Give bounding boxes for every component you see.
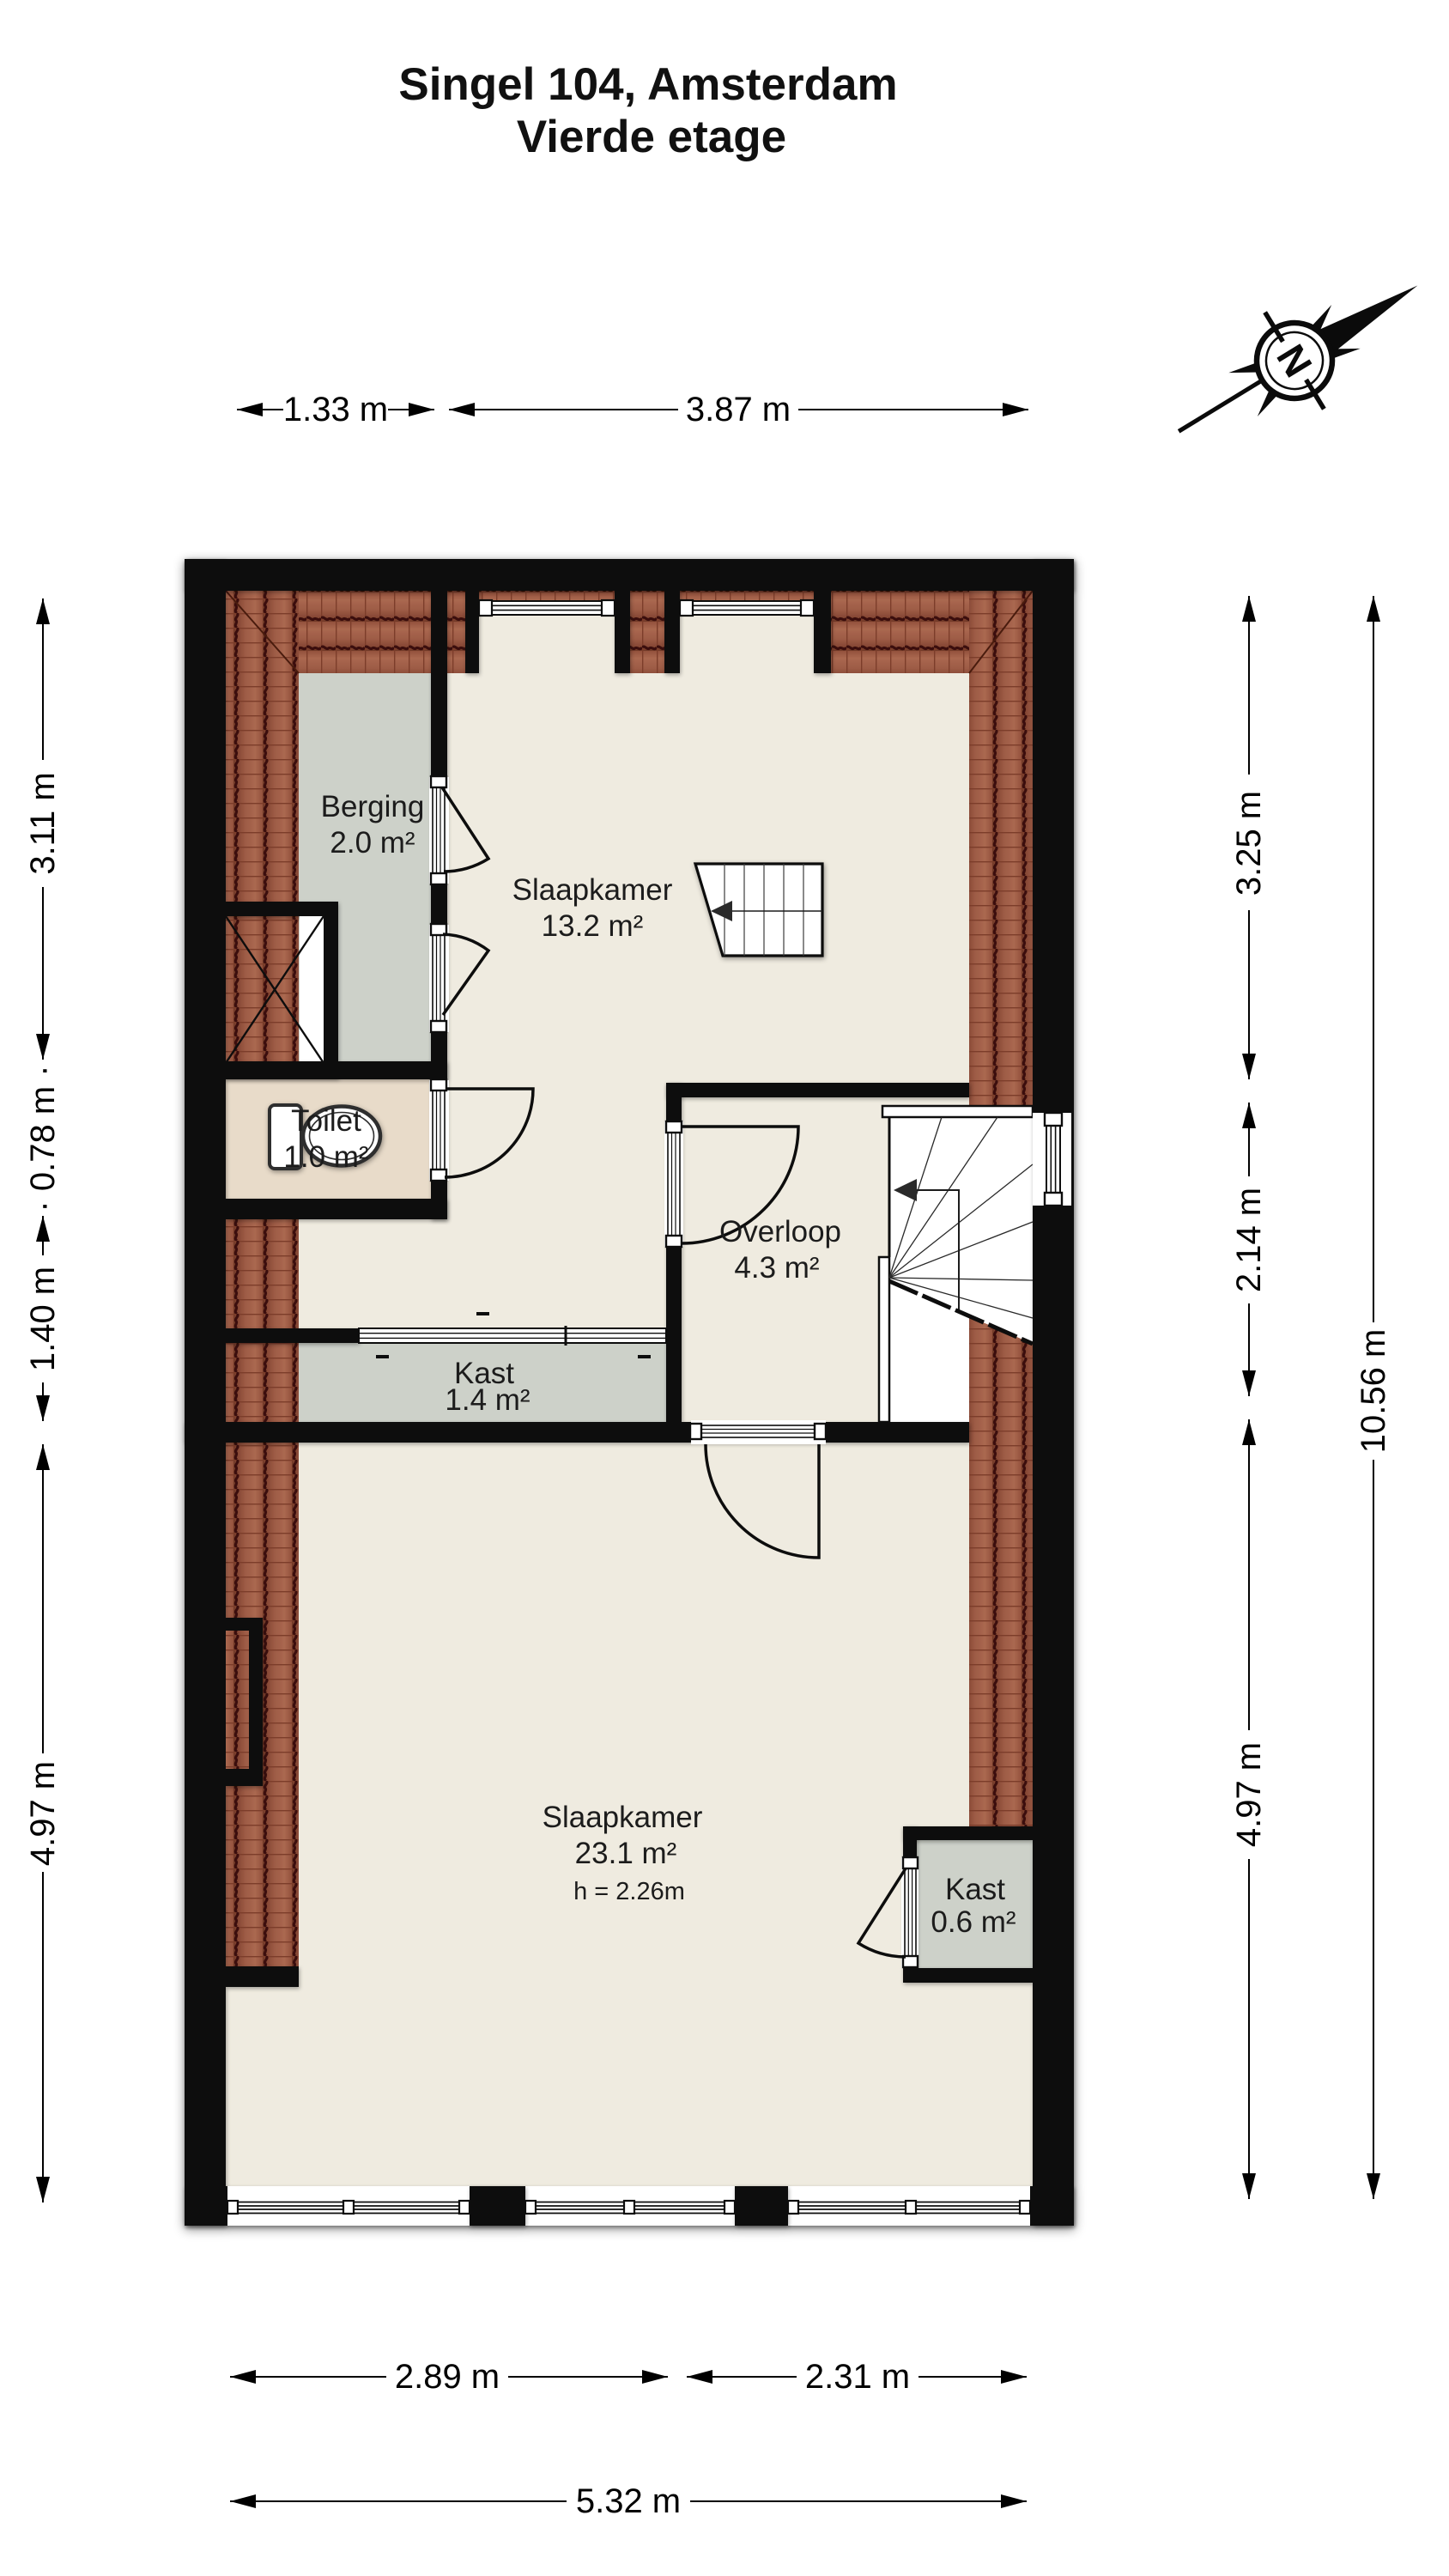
svg-text:23.1 m²: 23.1 m² (575, 1837, 677, 1870)
svg-text:3.11 m: 3.11 m (24, 772, 62, 874)
svg-text:Berging: Berging (321, 790, 425, 823)
svg-text:2.89 m: 2.89 m (395, 2358, 500, 2396)
svg-text:4.97 m: 4.97 m (24, 1761, 62, 1866)
svg-text:3.25 m: 3.25 m (1230, 791, 1268, 896)
svg-text:1.33 m: 1.33 m (283, 391, 388, 428)
svg-text:Slaapkamer: Slaapkamer (512, 873, 673, 907)
svg-text:4.97 m: 4.97 m (1230, 1742, 1268, 1847)
svg-text:3.87 m: 3.87 m (686, 391, 791, 428)
svg-text:2.31 m: 2.31 m (805, 2358, 910, 2396)
svg-text:Singel 104, Amsterdam: Singel 104, Amsterdam (398, 59, 897, 110)
svg-text:Slaapkamer: Slaapkamer (543, 1801, 703, 1834)
svg-text:1.4 m²: 1.4 m² (445, 1383, 530, 1417)
svg-text:Vierde etage: Vierde etage (517, 112, 786, 162)
svg-text:1.40 m: 1.40 m (24, 1267, 62, 1371)
svg-text:h = 2.26m: h = 2.26m (573, 1878, 685, 1905)
svg-text:2.0 m²: 2.0 m² (330, 826, 415, 860)
svg-text:Toilet: Toilet (291, 1104, 361, 1138)
svg-text:4.3 m²: 4.3 m² (734, 1251, 819, 1285)
svg-text:2.14 m: 2.14 m (1230, 1188, 1268, 1292)
svg-text:1.0 m²: 1.0 m² (283, 1140, 368, 1174)
svg-text:Overloop: Overloop (719, 1215, 841, 1249)
svg-text:Kast: Kast (945, 1873, 1005, 1906)
svg-text:13.2 m²: 13.2 m² (542, 909, 644, 943)
svg-text:· 0.78 m ·: · 0.78 m · (24, 1065, 62, 1212)
svg-text:5.32 m: 5.32 m (576, 2482, 681, 2520)
svg-text:0.6 m²: 0.6 m² (931, 1905, 1016, 1939)
svg-text:10.56 m: 10.56 m (1355, 1329, 1392, 1454)
